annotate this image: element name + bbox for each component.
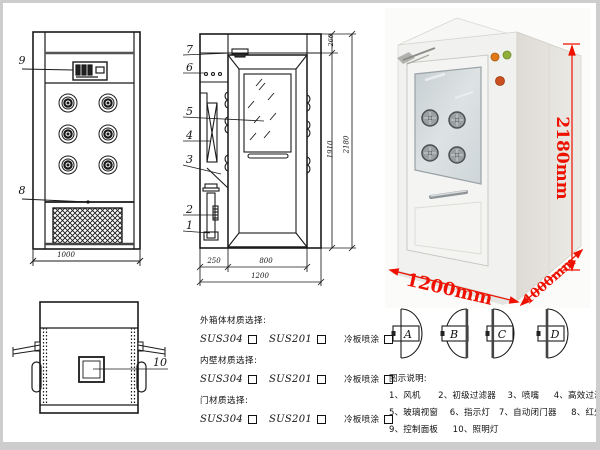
material-option-label: SUS201 (269, 374, 312, 385)
door-config-b: B (441, 309, 469, 358)
dim-250: 250 (202, 258, 226, 265)
callout-leaders-front (22, 69, 90, 204)
frame-bottom (0, 442, 600, 450)
material-checkbox[interactable] (248, 335, 257, 344)
exhaust-grille (53, 208, 122, 244)
door-config-c: C (486, 309, 514, 358)
door-config-b-label: B (449, 328, 458, 341)
legend-line: 1、风机 2、初级过滤器 3、喷嘴 4、高效过滤器 (389, 389, 595, 401)
material-option-label: SUS304 (200, 414, 243, 425)
legend-title: 图示说明: (389, 372, 595, 384)
glass-hatch (248, 79, 276, 140)
dim-2180: 2180 (344, 132, 351, 158)
callout-3: 3 (183, 154, 196, 165)
door-config-d: D (537, 309, 568, 358)
material-option-label: 冷板喷涂 (344, 373, 379, 385)
front-view-drawing (20, 28, 150, 273)
door-handles-top (32, 362, 146, 392)
material-checkbox[interactable] (248, 375, 257, 384)
material-checkbox[interactable] (317, 375, 326, 384)
material-row: SUS304 SUS201 冷板喷涂 (200, 333, 385, 345)
material-section-label: 内壁材质选择: (200, 354, 385, 366)
frame-top (0, 0, 600, 3)
material-checkbox[interactable] (384, 335, 393, 344)
material-section-label: 门材质选择: (200, 394, 385, 406)
dim-1910: 1910 (328, 137, 335, 163)
callout-1: 1 (183, 220, 196, 231)
dim-1200: 1200 (246, 273, 274, 280)
callout-5: 5 (183, 106, 196, 117)
material-checkbox[interactable] (317, 415, 326, 424)
dim-height-label: 2180mm (552, 116, 572, 199)
door-config-a: A (392, 309, 422, 358)
product-photo: 2180mm 1200mm 1000mm (385, 8, 590, 308)
material-row: SUS304 SUS201 冷板喷涂 (200, 413, 385, 425)
nozzles-side (225, 92, 310, 173)
door-config-d-label: D (550, 328, 560, 341)
photo-door (407, 55, 488, 266)
dim-width-front (30, 250, 143, 266)
material-option-label: 冷板喷涂 (344, 333, 379, 345)
material-option-label: SUS304 (200, 334, 243, 345)
callout-10: 10 (150, 357, 170, 368)
door-config-a-label: A (403, 328, 412, 341)
callout-4: 4 (183, 130, 196, 141)
control-panel (73, 62, 107, 80)
door-config-diagrams: A B C D (388, 303, 588, 365)
dim-260: 260 (328, 29, 335, 51)
frame-left (0, 0, 3, 450)
material-section-label: 外箱体材质选择: (200, 314, 385, 326)
material-option-label: SUS201 (269, 334, 312, 345)
hepa-filter (200, 93, 228, 188)
legend-line: 9、控制面板 10、照明灯 (389, 423, 595, 435)
fan-column (203, 184, 219, 240)
side-view-drawing (180, 28, 380, 293)
material-option-label: SUS201 (269, 414, 312, 425)
material-checkbox[interactable] (317, 335, 326, 344)
door-side (228, 49, 307, 247)
door-swing-arms (13, 342, 165, 357)
material-row: SUS304 SUS201 冷板喷涂 (200, 373, 385, 385)
door-config-c-label: C (498, 328, 507, 341)
material-option-label: SUS304 (200, 374, 243, 385)
indicator-lights (200, 73, 228, 83)
callout-9: 9 (15, 55, 29, 66)
callout-2: 2 (183, 204, 196, 215)
dims-horizontal (197, 248, 324, 286)
callout-7: 7 (183, 44, 196, 55)
callout-6: 6 (183, 62, 196, 73)
nozzles-front (59, 94, 117, 174)
material-option-label: 冷板喷涂 (344, 413, 379, 425)
material-options: 外箱体材质选择: SUS304 SUS201 冷板喷涂 内壁材质选择: SUS3… (200, 314, 385, 434)
legend: 图示说明: 1、风机 2、初级过滤器 3、喷嘴 4、高效过滤器 5、玻璃视窗 6… (389, 372, 595, 440)
ceiling-lamp (79, 357, 104, 382)
callout-8: 8 (15, 185, 29, 196)
dim-800: 800 (254, 258, 278, 265)
air-shower-spec-sheet: { "front_view": { "callout_9": "9", "cal… (0, 0, 600, 450)
legend-line: 5、玻璃视窗 6、指示灯 7、自动闭门器 8、红外线感应器 (389, 406, 595, 418)
material-checkbox[interactable] (248, 415, 257, 424)
frame-right (596, 0, 600, 450)
dim-front-width: 1000 (52, 252, 80, 259)
